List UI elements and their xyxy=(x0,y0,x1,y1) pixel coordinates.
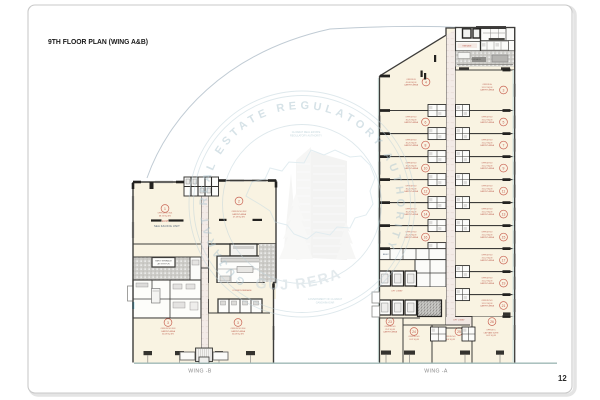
svg-text:CARPET AREA: CARPET AREA xyxy=(404,236,419,239)
svg-text:11: 11 xyxy=(502,190,506,194)
svg-text:7: 7 xyxy=(503,144,505,148)
svg-text:CARPET AREA: CARPET AREA xyxy=(404,190,419,193)
svg-text:17: 17 xyxy=(502,259,506,263)
svg-text:CARPET AREA: CARPET AREA xyxy=(480,213,495,216)
svg-text:OFFICE NO: OFFICE NO xyxy=(482,278,493,280)
svg-text:12: 12 xyxy=(424,190,428,194)
svg-text:45.08 SQ.M: 45.08 SQ.M xyxy=(406,82,417,84)
svg-text:CARPET AREA: CARPET AREA xyxy=(161,330,176,333)
svg-text:PART TERRACE: PART TERRACE xyxy=(155,260,172,263)
svg-text:CARPET AREA: CARPET AREA xyxy=(404,144,419,147)
svg-text:26: 26 xyxy=(490,320,494,324)
svg-text:19: 19 xyxy=(502,282,506,286)
svg-text:CARPET AREA: CARPET AREA xyxy=(404,167,419,170)
svg-text:3: 3 xyxy=(503,89,505,93)
svg-text:OFFICE A: OFFICE A xyxy=(482,83,492,86)
svg-text:CAPTAIN SUITE: CAPTAIN SUITE xyxy=(484,331,500,334)
svg-text:31.12 SQ.M: 31.12 SQ.M xyxy=(482,142,493,144)
svg-text:LIFT LOBBY: LIFT LOBBY xyxy=(453,320,465,322)
svg-text:OFFICE NO: OFFICE NO xyxy=(482,209,493,211)
svg-text:WING -B: WING -B xyxy=(188,369,212,375)
svg-text:1: 1 xyxy=(164,207,166,211)
svg-text:9TH FLOOR PLAN (WING A&B): 9TH FLOOR PLAN (WING A&B) xyxy=(48,37,148,46)
svg-text:47.18 SQ.MT.: 47.18 SQ.MT. xyxy=(233,217,246,219)
svg-text:OFFICE NO: OFFICE NO xyxy=(406,140,417,142)
svg-text:29.2 SQ.M: 29.2 SQ.M xyxy=(385,329,395,331)
svg-text:CARPET AREA: CARPET AREA xyxy=(231,330,246,333)
svg-text:44.2 SQ.M: 44.2 SQ.M xyxy=(486,335,496,337)
svg-text:CARPET AREA: CARPET AREA xyxy=(480,190,495,193)
svg-text:15: 15 xyxy=(502,236,506,240)
svg-text:OFFICE NO 901: OFFICE NO 901 xyxy=(158,213,174,215)
svg-text:CARPET AREA: CARPET AREA xyxy=(404,84,419,87)
svg-text:24: 24 xyxy=(412,330,416,334)
svg-text:3: 3 xyxy=(237,321,239,325)
svg-text:OFFICE NO: OFFICE NO xyxy=(409,336,420,338)
svg-text:24.2 SQ.M: 24.2 SQ.M xyxy=(409,339,419,341)
svg-text:30.25 SQ.M: 30.25 SQ.M xyxy=(406,119,417,121)
svg-text:CARPET AREA: CARPET AREA xyxy=(480,144,495,147)
svg-text:CARPET AREA: CARPET AREA xyxy=(404,121,419,124)
svg-text:CARPET AREA: CARPET AREA xyxy=(480,89,495,92)
svg-text:TERRACE: TERRACE xyxy=(471,58,481,61)
svg-text:3: 3 xyxy=(167,321,169,325)
svg-text:OFFICE NO: OFFICE NO xyxy=(482,300,493,302)
svg-text:AT 9TH FLR: AT 9TH FLR xyxy=(157,263,169,266)
svg-text:13: 13 xyxy=(502,213,506,217)
svg-text:26.6 SQ.M: 26.6 SQ.M xyxy=(445,339,455,341)
svg-text:9: 9 xyxy=(503,167,505,171)
svg-text:OFFICE NO 904: OFFICE NO 904 xyxy=(231,328,247,330)
svg-text:31.12 SQ.M: 31.12 SQ.M xyxy=(482,211,493,213)
svg-text:OFFICE NO: OFFICE NO xyxy=(385,326,396,328)
svg-text:10.97: 10.97 xyxy=(162,219,169,223)
svg-text:PASSAGE: PASSAGE xyxy=(463,45,473,48)
svg-text:31.12 SQ.M: 31.12 SQ.M xyxy=(482,280,493,282)
svg-text:31.12 SQ.M: 31.12 SQ.M xyxy=(482,188,493,190)
svg-text:WING -A: WING -A xyxy=(424,369,448,375)
svg-text:OFFICE NO: OFFICE NO xyxy=(482,117,493,119)
svg-text:52.08 SQ.MT.: 52.08 SQ.MT. xyxy=(162,334,175,336)
svg-text:CARPET AREA: CARPET AREA xyxy=(480,167,495,170)
svg-text:LIFT LOBBY: LIFT LOBBY xyxy=(391,291,403,293)
svg-text:CARPET AREA: CARPET AREA xyxy=(480,236,495,239)
svg-text:CARPET AREA: CARPET AREA xyxy=(383,331,398,334)
svg-text:REGULATORY AUTHORITY: REGULATORY AUTHORITY xyxy=(290,134,322,137)
svg-text:31.12 SQ.M: 31.12 SQ.M xyxy=(482,303,493,305)
svg-text:23: 23 xyxy=(388,320,392,324)
svg-text:30.25 SQ.M: 30.25 SQ.M xyxy=(406,142,417,144)
svg-text:68.74 SQ.MT.: 68.74 SQ.MT. xyxy=(159,215,172,217)
svg-text:OFFICE NO: OFFICE NO xyxy=(482,163,493,165)
svg-text:OFFICE NO: OFFICE NO xyxy=(482,255,493,257)
svg-text:12: 12 xyxy=(558,374,567,383)
svg-text:CARPET AREA: CARPET AREA xyxy=(480,121,495,124)
svg-text:16: 16 xyxy=(424,236,428,240)
svg-text:4: 4 xyxy=(425,81,427,85)
svg-text:52.08 SQ.MT.: 52.08 SQ.MT. xyxy=(232,334,245,336)
svg-text:OFFICE NO: OFFICE NO xyxy=(482,140,493,142)
svg-text:31.12 SQ.M: 31.12 SQ.M xyxy=(482,257,493,259)
svg-text:6: 6 xyxy=(425,121,427,125)
svg-text:CARPET AREA: CARPET AREA xyxy=(404,213,419,216)
svg-text:5: 5 xyxy=(503,121,505,125)
svg-text:CARPET AREA: CARPET AREA xyxy=(480,282,495,285)
svg-text:CARPET AREA: CARPET AREA xyxy=(480,259,495,262)
svg-text:OFFICE NO: OFFICE NO xyxy=(406,117,417,119)
svg-text:31.12 SQ.M: 31.12 SQ.M xyxy=(482,87,493,89)
svg-text:OFFICE B: OFFICE B xyxy=(406,79,416,81)
svg-text:CARPET AREA: CARPET AREA xyxy=(232,213,247,216)
svg-text:GANDHINAGAR: GANDHINAGAR xyxy=(316,301,335,304)
svg-text:OFFICE C: OFFICE C xyxy=(486,330,496,332)
svg-text:30.25 SQ.M: 30.25 SQ.M xyxy=(406,188,417,190)
svg-text:31.12 SQ.M: 31.12 SQ.M xyxy=(482,165,493,167)
svg-text:ELEC: ELEC xyxy=(383,254,389,256)
svg-text:31.12 SQ.M: 31.12 SQ.M xyxy=(482,234,493,236)
svg-text:30.25 SQ.M: 30.25 SQ.M xyxy=(406,165,417,167)
svg-text:OFFICE NO 903: OFFICE NO 903 xyxy=(161,328,177,330)
svg-text:14: 14 xyxy=(424,213,428,217)
svg-text:31.12 SQ.M: 31.12 SQ.M xyxy=(482,119,493,121)
svg-text:OFFICE NO: OFFICE NO xyxy=(482,232,493,234)
svg-text:25: 25 xyxy=(457,330,461,334)
svg-text:OFFICE NO: OFFICE NO xyxy=(406,186,417,188)
svg-text:OFFICE NO 902: OFFICE NO 902 xyxy=(232,211,248,213)
svg-text:8: 8 xyxy=(425,144,427,148)
svg-text:10: 10 xyxy=(424,167,428,171)
svg-text:SEA FACING UNIT: SEA FACING UNIT xyxy=(154,224,180,228)
svg-text:21: 21 xyxy=(502,304,506,308)
svg-text:OFFICE NO: OFFICE NO xyxy=(482,186,493,188)
svg-text:2: 2 xyxy=(238,200,240,204)
svg-text:CARPET AREA: CARPET AREA xyxy=(480,305,495,308)
